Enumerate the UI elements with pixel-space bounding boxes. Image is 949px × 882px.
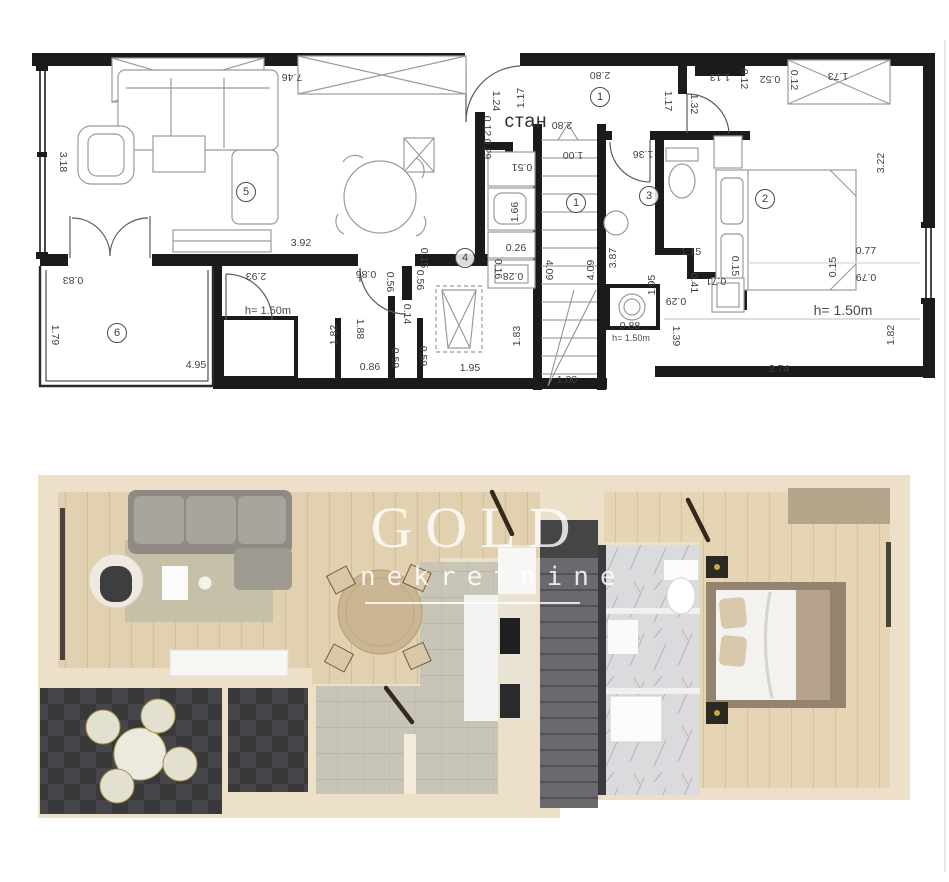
kitchen-icons xyxy=(488,152,535,288)
hall-wall-stub xyxy=(404,734,416,794)
pouf-icon xyxy=(712,278,744,312)
stairs-technical xyxy=(541,124,597,386)
closet-room xyxy=(222,318,296,378)
nightstand-icon xyxy=(714,136,742,168)
terrace-outline xyxy=(40,266,213,386)
living-window-render xyxy=(60,508,65,660)
coffee-table-render xyxy=(162,566,188,600)
unit-label: стан xyxy=(504,111,547,133)
bed-render xyxy=(706,582,846,708)
washing-machine-icon xyxy=(619,294,645,320)
image-edge-line xyxy=(944,40,946,872)
armchair-render xyxy=(89,554,143,608)
bedroom-rug-render xyxy=(788,488,890,524)
armchair-icon xyxy=(78,126,134,184)
bed-icon xyxy=(716,170,856,290)
coffee-table-icon xyxy=(153,136,205,172)
stairs-render xyxy=(540,520,598,808)
tv-stand-render xyxy=(170,650,288,676)
sink-render xyxy=(608,620,638,654)
tv-stand-icon xyxy=(173,230,271,252)
toilet-icon xyxy=(666,148,698,198)
decor-render xyxy=(198,576,212,590)
bedroom-window-render xyxy=(886,542,891,627)
rendered-floorplan xyxy=(38,475,910,818)
floorplan-page: 7.462.801.130.120.520.121.733.183.221.24… xyxy=(0,0,949,882)
floorplan-image xyxy=(0,0,949,882)
technical-floorplan xyxy=(32,53,935,390)
hall-wardrobe-icon xyxy=(436,286,482,352)
toilet-render xyxy=(667,578,695,614)
sink-icon xyxy=(604,211,628,235)
shower-render xyxy=(610,696,662,742)
bathroom-render xyxy=(598,545,700,795)
toilet-tank xyxy=(664,560,698,580)
